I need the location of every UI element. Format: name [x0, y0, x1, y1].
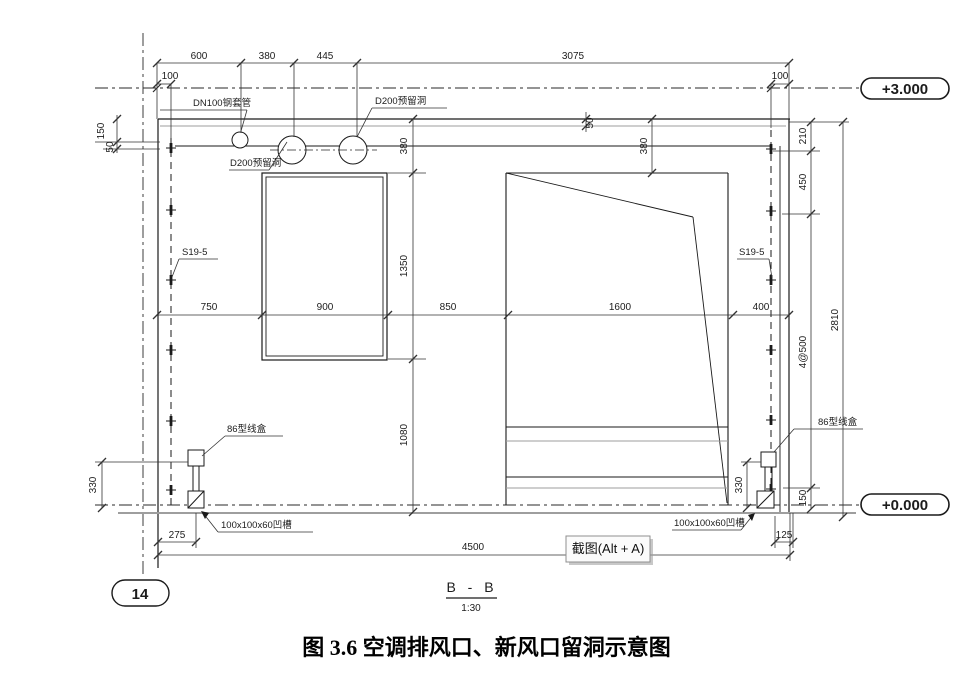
dim-50-mid: 50	[585, 117, 596, 129]
dim-750: 750	[201, 302, 218, 313]
wall-lines	[118, 119, 856, 568]
dim-1350: 1350	[399, 254, 410, 277]
dim-1080: 1080	[399, 423, 410, 446]
label-junction-box-right: 86型线盒	[818, 416, 858, 428]
label-dn100-sleeve: DN100钢套管	[193, 97, 251, 109]
dim-50-left: 50	[105, 141, 116, 153]
label-recess-left: 100x100x60凹槽	[221, 519, 292, 531]
dim-445: 445	[317, 51, 334, 62]
dim-850: 850	[440, 302, 457, 313]
junction-box-left	[188, 450, 204, 508]
section-title-block: B - B 1:30	[446, 579, 498, 614]
label-d200-hole-top: D200预留洞	[375, 95, 426, 107]
dim-330-right: 330	[734, 476, 745, 493]
dim-450: 450	[798, 173, 809, 190]
label-d200-hole-bottom: D200预留洞	[230, 157, 281, 169]
section-title: B - B	[446, 579, 497, 595]
section-scale: 1:30	[461, 603, 481, 614]
dim-1600: 1600	[609, 302, 632, 313]
conduit-right	[766, 130, 776, 505]
elevation-marker-bottom: +0.000	[861, 494, 949, 515]
dim-4500: 4500	[462, 542, 485, 553]
right-opening	[506, 173, 728, 505]
conduit-left	[166, 138, 176, 505]
elevation-marker-top: +3.000	[861, 78, 949, 99]
drawing-canvas: 600 380 445 3075 100 100 150 50 50 380 3…	[0, 0, 973, 682]
dim-3075: 3075	[562, 51, 585, 62]
dim-150-right: 150	[798, 489, 809, 506]
junction-box-right	[757, 452, 776, 508]
elevation-top-value: +3.000	[882, 81, 928, 98]
elevation-bottom-value: +0.000	[882, 497, 928, 514]
dim-210: 210	[798, 127, 809, 144]
dim-275: 275	[169, 530, 186, 541]
cad-drawing-page: 600 380 445 3075 100 100 150 50 50 380 3…	[0, 0, 973, 682]
dim-2810: 2810	[830, 308, 841, 331]
dim-380-top: 380	[259, 51, 276, 62]
figure-caption: 图 3.6 空调排风口、新风口留洞示意图	[0, 630, 973, 662]
leaders	[160, 108, 863, 532]
dim-330-left: 330	[88, 476, 99, 493]
dim-600: 600	[191, 51, 208, 62]
dim-380-mid: 380	[399, 137, 410, 154]
label-s19-right: S19-5	[739, 247, 764, 258]
dim-900: 900	[317, 302, 334, 313]
dim-150-left: 150	[96, 122, 107, 139]
dim-380-right: 380	[639, 137, 650, 154]
dim-4at500: 4@500	[798, 335, 809, 368]
label-recess-right: 100x100x60凹槽	[674, 517, 745, 529]
dim-125: 125	[776, 530, 793, 541]
dim-100-left: 100	[162, 71, 179, 82]
screenshot-button[interactable]: 截图(Alt + A)	[566, 536, 653, 565]
label-s19-left: S19-5	[182, 247, 207, 258]
screenshot-button-label: 截图(Alt + A)	[572, 541, 645, 556]
grid-bubble-14: 14	[112, 580, 169, 606]
grid-bubble-label: 14	[132, 586, 149, 603]
dim-400: 400	[753, 302, 770, 313]
dim-100-right: 100	[772, 71, 789, 82]
label-junction-box-left: 86型线盒	[227, 423, 267, 435]
dn100-sleeve-circle	[232, 132, 248, 148]
left-opening	[262, 173, 387, 360]
